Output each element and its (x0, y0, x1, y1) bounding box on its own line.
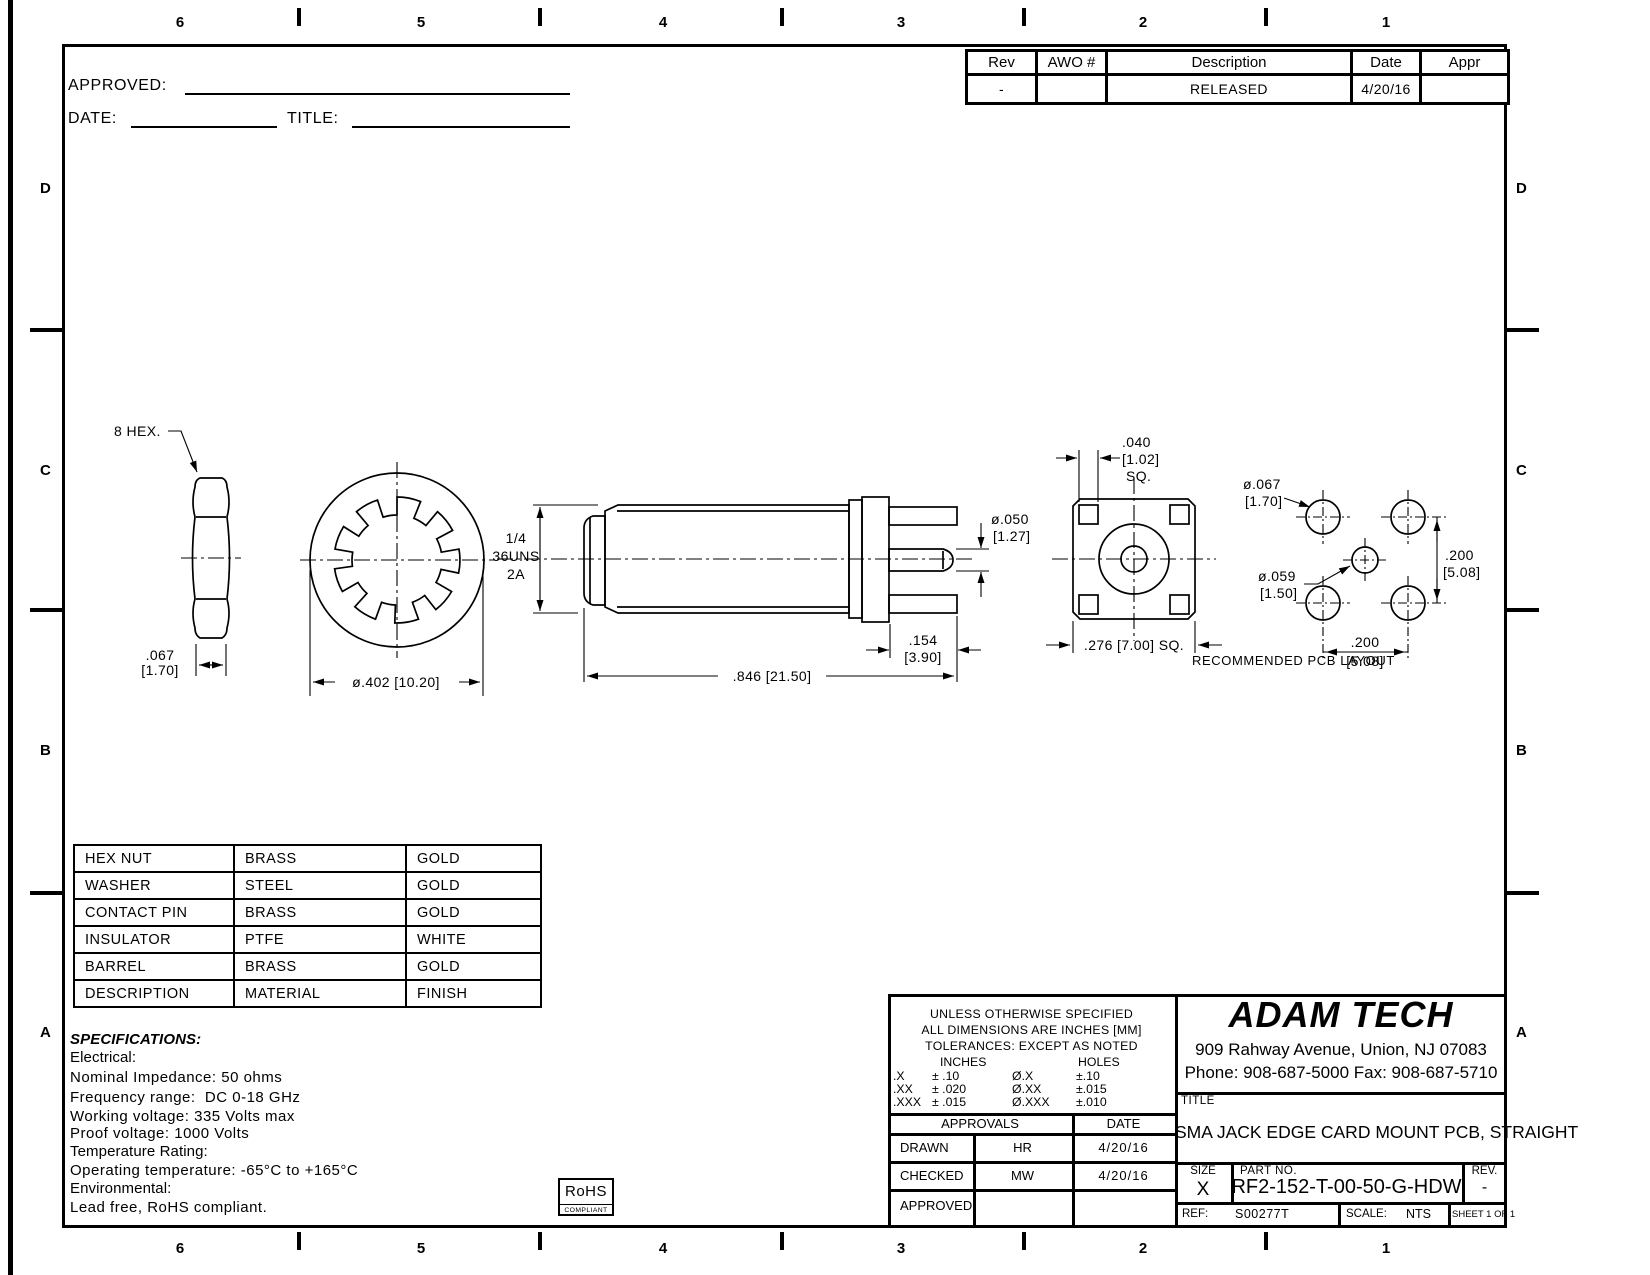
finish-cell: GOLD (406, 953, 541, 980)
part-cell: WASHER (74, 872, 234, 899)
approved-row-label: APPROVED (900, 1199, 972, 1212)
finish-header: FINISH (406, 980, 541, 1007)
hex-nut-callout: 8 HEX. (114, 423, 161, 439)
drawn-initials: HR (973, 1141, 1072, 1154)
pcb-pitch-vertical-mm: [5.08] (1443, 564, 1480, 580)
company-phone: Phone: 908-687-5000 Fax: 908-687-5710 (1175, 1064, 1507, 1081)
material-cell: PTFE (234, 926, 406, 953)
flange-square-dim: .276 [7.00] SQ. (1084, 637, 1184, 653)
hex-nut-side-view (181, 478, 241, 638)
drawing-title: SMA JACK EDGE CARD MOUNT PCB, STRAIGHT (1175, 1124, 1507, 1142)
materials-row: WASHER STEEL GOLD (74, 872, 541, 899)
checked-date: 4/20/16 (1072, 1169, 1175, 1182)
hex-nut-dimensions (168, 431, 226, 676)
engineering-drawing-sheet: 6 5 4 3 2 1 6 5 4 3 2 1 D C B A D C B A … (0, 0, 1650, 1275)
titleblock-line (888, 1133, 1175, 1136)
tolerance-note-3: TOLERANCES: EXCEPT AS NOTED (888, 1040, 1175, 1052)
tol-cell: Ø.XX (1012, 1083, 1041, 1095)
tolerance-inches-header: INCHES (940, 1056, 986, 1068)
scale-label: SCALE: (1346, 1209, 1387, 1221)
tolerance-holes-header: HOLES (1078, 1056, 1120, 1068)
spec-lead-free: Lead free, RoHS compliant. (70, 1199, 267, 1216)
barrel-side-view (497, 497, 973, 622)
sheet-value: SHEET 1 OF 1 (1452, 1210, 1515, 1220)
scale-value: NTS (1406, 1208, 1431, 1221)
tol-cell: Ø.X (1012, 1070, 1033, 1082)
spec-frequency: Frequency range: DC 0-18 GHz (70, 1089, 300, 1106)
tol-cell: ± .015 (932, 1096, 966, 1108)
lock-washer-view (300, 462, 494, 658)
spec-env-label: Environmental: (70, 1180, 171, 1197)
titleblock-line (888, 1189, 1175, 1192)
pin-diameter-in: ø.050 (991, 511, 1029, 527)
material-header: MATERIAL (234, 980, 406, 1007)
size-value: X (1175, 1180, 1231, 1199)
approvals-date-header: DATE (1072, 1117, 1175, 1130)
thread-spec-line2: 36UNS (492, 548, 539, 564)
tab-dim-in: .040 (1122, 434, 1151, 450)
washer-diameter-dim: ø.402 [10.20] (352, 674, 440, 690)
spec-impedance: Nominal Impedance: 50 ohms (70, 1069, 282, 1086)
pcb-hole-large-in: ø.067 (1243, 476, 1281, 492)
rohs-compliant-badge: RoHS COMPLIANT (558, 1178, 614, 1216)
rohs-sub: COMPLIANT (560, 1205, 612, 1214)
material-cell: BRASS (234, 953, 406, 980)
company-name: ADAM TECH (1175, 997, 1507, 1033)
specifications-title: SPECIFICATIONS: (70, 1031, 201, 1048)
title-block-label: TITLE (1181, 1096, 1215, 1108)
titleblock-line (1175, 1162, 1507, 1165)
tolerance-note-1: UNLESS OTHERWISE SPECIFIED (888, 1008, 1175, 1020)
materials-row: INSULATOR PTFE WHITE (74, 926, 541, 953)
spec-working-voltage: Working voltage: 335 Volts max (70, 1108, 295, 1125)
thread-spec-line3: 2A (507, 566, 525, 582)
materials-table: HEX NUT BRASS GOLD WASHER STEEL GOLD CON… (73, 844, 542, 1008)
body-length-dim: .846 [21.50] (733, 668, 812, 684)
tail-length-in: .154 (909, 632, 938, 648)
finish-cell: GOLD (406, 899, 541, 926)
tolerance-note-2: ALL DIMENSIONS ARE INCHES [MM] (888, 1024, 1175, 1036)
rev-label: REV. (1462, 1166, 1507, 1178)
rev-value: - (1462, 1180, 1507, 1196)
tol-cell: .XX (893, 1083, 913, 1095)
materials-header-row: DESCRIPTION MATERIAL FINISH (74, 980, 541, 1007)
drawn-date: 4/20/16 (1072, 1141, 1175, 1154)
material-cell: BRASS (234, 845, 406, 872)
checked-label: CHECKED (900, 1169, 964, 1182)
tol-cell: .X (893, 1070, 905, 1082)
materials-row: HEX NUT BRASS GOLD (74, 845, 541, 872)
spec-electrical-label: Electrical: (70, 1049, 136, 1066)
spec-proof-voltage: Proof voltage: 1000 Volts (70, 1125, 249, 1142)
tol-cell: ± .020 (932, 1083, 966, 1095)
titleblock-line (1175, 1092, 1507, 1095)
flange-front-view (1052, 478, 1216, 641)
titleblock-line (1448, 1202, 1451, 1228)
size-label: SIZE (1175, 1166, 1231, 1178)
tail-length-mm: [3.90] (904, 649, 941, 665)
pcb-layout-caption: RECOMMENDED PCB LAYOUT (1192, 654, 1395, 667)
finish-cell: GOLD (406, 872, 541, 899)
ref-value: S00277T (1235, 1208, 1289, 1221)
tab-dim-mm: [1.02] (1122, 451, 1159, 467)
part-cell: INSULATOR (74, 926, 234, 953)
pcb-hole-small-mm: [1.50] (1260, 585, 1297, 601)
tol-cell: ±.10 (1076, 1070, 1100, 1082)
tol-cell: Ø.XXX (1012, 1096, 1050, 1108)
part-no-value: RF2-152-T-00-50-G-HDW (1231, 1177, 1462, 1197)
description-header: DESCRIPTION (74, 980, 234, 1007)
titleblock-line (1338, 1202, 1341, 1228)
checked-initials: MW (973, 1169, 1072, 1182)
finish-cell: WHITE (406, 926, 541, 953)
finish-cell: GOLD (406, 845, 541, 872)
materials-row: BARREL BRASS GOLD (74, 953, 541, 980)
tol-cell: ±.010 (1076, 1096, 1107, 1108)
tol-cell: ± .10 (932, 1070, 959, 1082)
ref-label: REF: (1182, 1209, 1208, 1221)
company-address: 909 Rahway Avenue, Union, NJ 07083 (1175, 1041, 1507, 1058)
part-cell: CONTACT PIN (74, 899, 234, 926)
tab-dim-sq: SQ. (1126, 468, 1151, 484)
part-cell: BARREL (74, 953, 234, 980)
thread-spec-line1: 1/4 (506, 530, 527, 546)
hex-thickness-mm: [1.70] (141, 662, 178, 678)
tol-cell: .XXX (893, 1096, 921, 1108)
hex-thickness-in: .067 (146, 647, 175, 663)
spec-temp-label: Temperature Rating: (70, 1143, 208, 1160)
titleblock-line (1175, 1202, 1507, 1205)
materials-row: CONTACT PIN BRASS GOLD (74, 899, 541, 926)
rohs-name: RoHS (560, 1180, 612, 1205)
pcb-pitch-vertical-in: .200 (1445, 547, 1474, 563)
tol-cell: ±.015 (1076, 1083, 1107, 1095)
pcb-hole-small-in: ø.059 (1258, 568, 1296, 584)
pcb-hole-large-mm: [1.70] (1245, 493, 1282, 509)
drawn-label: DRAWN (900, 1141, 949, 1154)
part-cell: HEX NUT (74, 845, 234, 872)
material-cell: BRASS (234, 899, 406, 926)
pin-diameter-mm: [1.27] (993, 528, 1030, 544)
spec-operating-temp: Operating temperature: -65°C to +165°C (70, 1162, 358, 1179)
approvals-header: APPROVALS (888, 1117, 1072, 1130)
pcb-pitch-horizontal-in: .200 (1351, 634, 1380, 650)
titleblock-line (888, 1161, 1175, 1164)
material-cell: STEEL (234, 872, 406, 899)
